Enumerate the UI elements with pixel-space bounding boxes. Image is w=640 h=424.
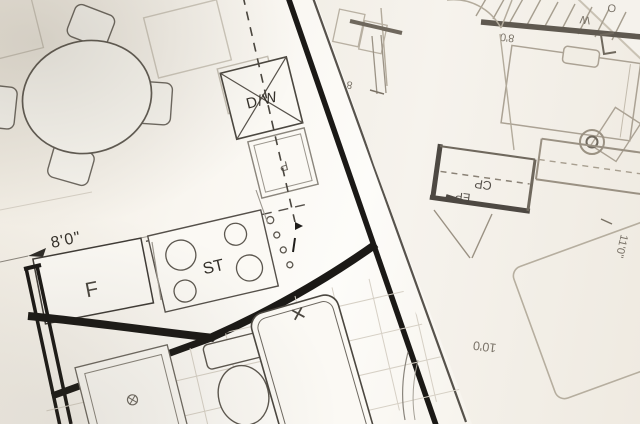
dishwasher-group: D/W: [220, 57, 302, 139]
under-wall-a: [372, 36, 377, 94]
dim-arrow: [28, 248, 46, 257]
tub-curve-line: [403, 352, 408, 420]
ep-label: EP: [454, 189, 471, 203]
chair-west: [0, 84, 18, 130]
kitchen-width-dim: 8'0": [49, 229, 82, 252]
fixture-symbol-outer: [580, 130, 604, 154]
door-flag-stem: [293, 238, 295, 252]
stove-knob: [286, 261, 293, 268]
faint-floor-line: [0, 192, 92, 210]
stove-group: ST: [148, 206, 297, 312]
under-dim-side: 11'0": [613, 233, 630, 259]
door-flag: [295, 222, 303, 238]
stove-knob: [280, 246, 287, 253]
bed: [501, 39, 640, 141]
pantry-group: P: [248, 128, 318, 198]
closet-cp-label: CP: [474, 176, 493, 192]
dim-side-tick: [601, 219, 612, 224]
faint-cabinet-corner: [0, 0, 43, 60]
blueprint-photo: 8'0 8'0 W O CP: [0, 0, 640, 424]
under-letter-w: W: [579, 13, 591, 26]
faint-cabinet-a: [144, 0, 232, 78]
dining-table-group: [0, 0, 192, 209]
dim-leader: [0, 256, 28, 262]
closet-band: [536, 139, 640, 195]
door-v-left: [434, 210, 470, 258]
shower-group: [75, 345, 190, 424]
door-v-right: [472, 214, 492, 258]
under-dim-top: 8'0: [499, 30, 515, 44]
stove-knob: [273, 231, 280, 238]
fridge-group: F: [33, 238, 154, 324]
under-furniture: [332, 9, 388, 54]
divider-wall: [28, 316, 214, 338]
round-table: [10, 27, 163, 167]
under-dim-bottom: 10'0: [472, 338, 497, 355]
under-wall-c: [500, 34, 514, 150]
closet-cp: CP: [430, 144, 538, 214]
